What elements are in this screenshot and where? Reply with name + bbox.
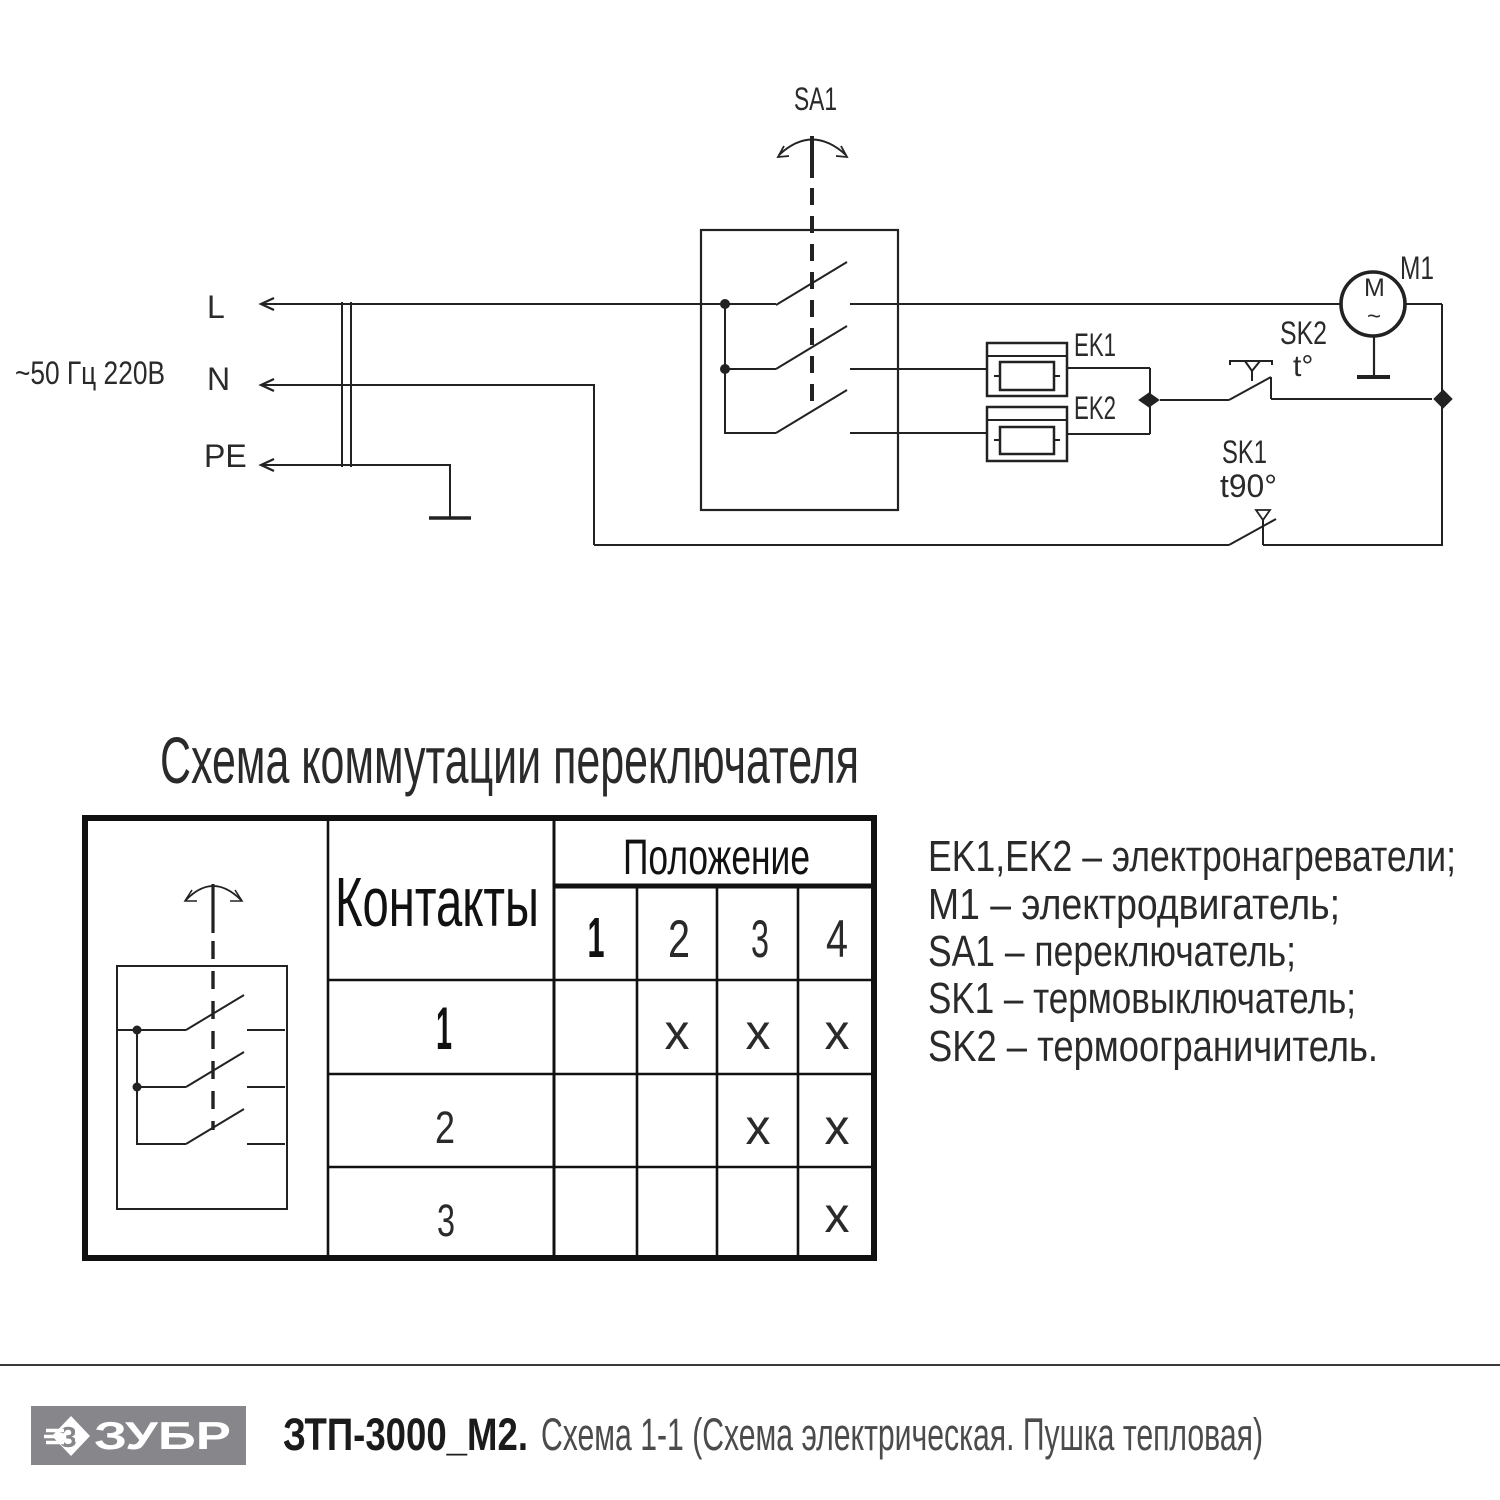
svg-text:~50 Гц 220В: ~50 Гц 220В [15,355,165,391]
svg-text:ЗУБР: ЗУБР [94,1415,231,1458]
svg-text:~: ~ [1367,303,1381,330]
svg-text:EK2: EK2 [1074,390,1116,426]
svg-text:3: 3 [751,910,769,969]
svg-text:x: x [665,1004,690,1060]
svg-text:x: x [746,1099,771,1155]
svg-text:2: 2 [668,910,690,969]
svg-text:M1: M1 [1400,250,1434,286]
svg-text:M1 – электродвигатель;: M1 – электродвигатель; [928,880,1340,929]
svg-text:x: x [746,1004,771,1060]
svg-text:SK2: SK2 [1280,315,1327,351]
svg-text:L: L [207,289,225,325]
svg-text:1: 1 [588,906,605,970]
svg-text:EK1,EK2 – электронагреватели;: EK1,EK2 – электронагреватели; [928,832,1456,881]
svg-text:Контакты: Контакты [335,863,539,941]
svg-text:М: М [1364,274,1385,302]
svg-text:SA1: SA1 [794,81,837,117]
svg-text:3: 3 [437,1195,455,1246]
svg-text:t°: t° [1293,350,1313,383]
svg-text:4: 4 [826,910,848,969]
svg-text:SA1 – переключатель;: SA1 – переключатель; [928,927,1296,976]
svg-text:2: 2 [435,1102,455,1153]
svg-text:PE: PE [204,438,247,474]
svg-text:Положение: Положение [623,829,810,885]
svg-text:SK1: SK1 [1222,434,1267,470]
svg-text:x: x [825,1099,850,1155]
svg-text:x: x [825,1187,850,1243]
svg-text:1: 1 [436,995,452,1062]
svg-text:Схема 1-1 (Схема электрическая: Схема 1-1 (Схема электрическая. Пушка те… [541,1409,1263,1460]
svg-text:Схема коммутации переключателя: Схема коммутации переключателя [160,723,859,797]
svg-text:EK1: EK1 [1074,327,1116,363]
svg-text:SK1 – термовыключатель;: SK1 – термовыключатель; [928,974,1356,1023]
svg-text:t90°: t90° [1220,468,1277,504]
svg-text:SK2 – термоограничитель.: SK2 – термоограничитель. [928,1022,1378,1071]
svg-text:ЗТП-3000_М2.: ЗТП-3000_М2. [283,1409,528,1460]
svg-text:N: N [207,361,230,397]
svg-text:x: x [825,1004,850,1060]
